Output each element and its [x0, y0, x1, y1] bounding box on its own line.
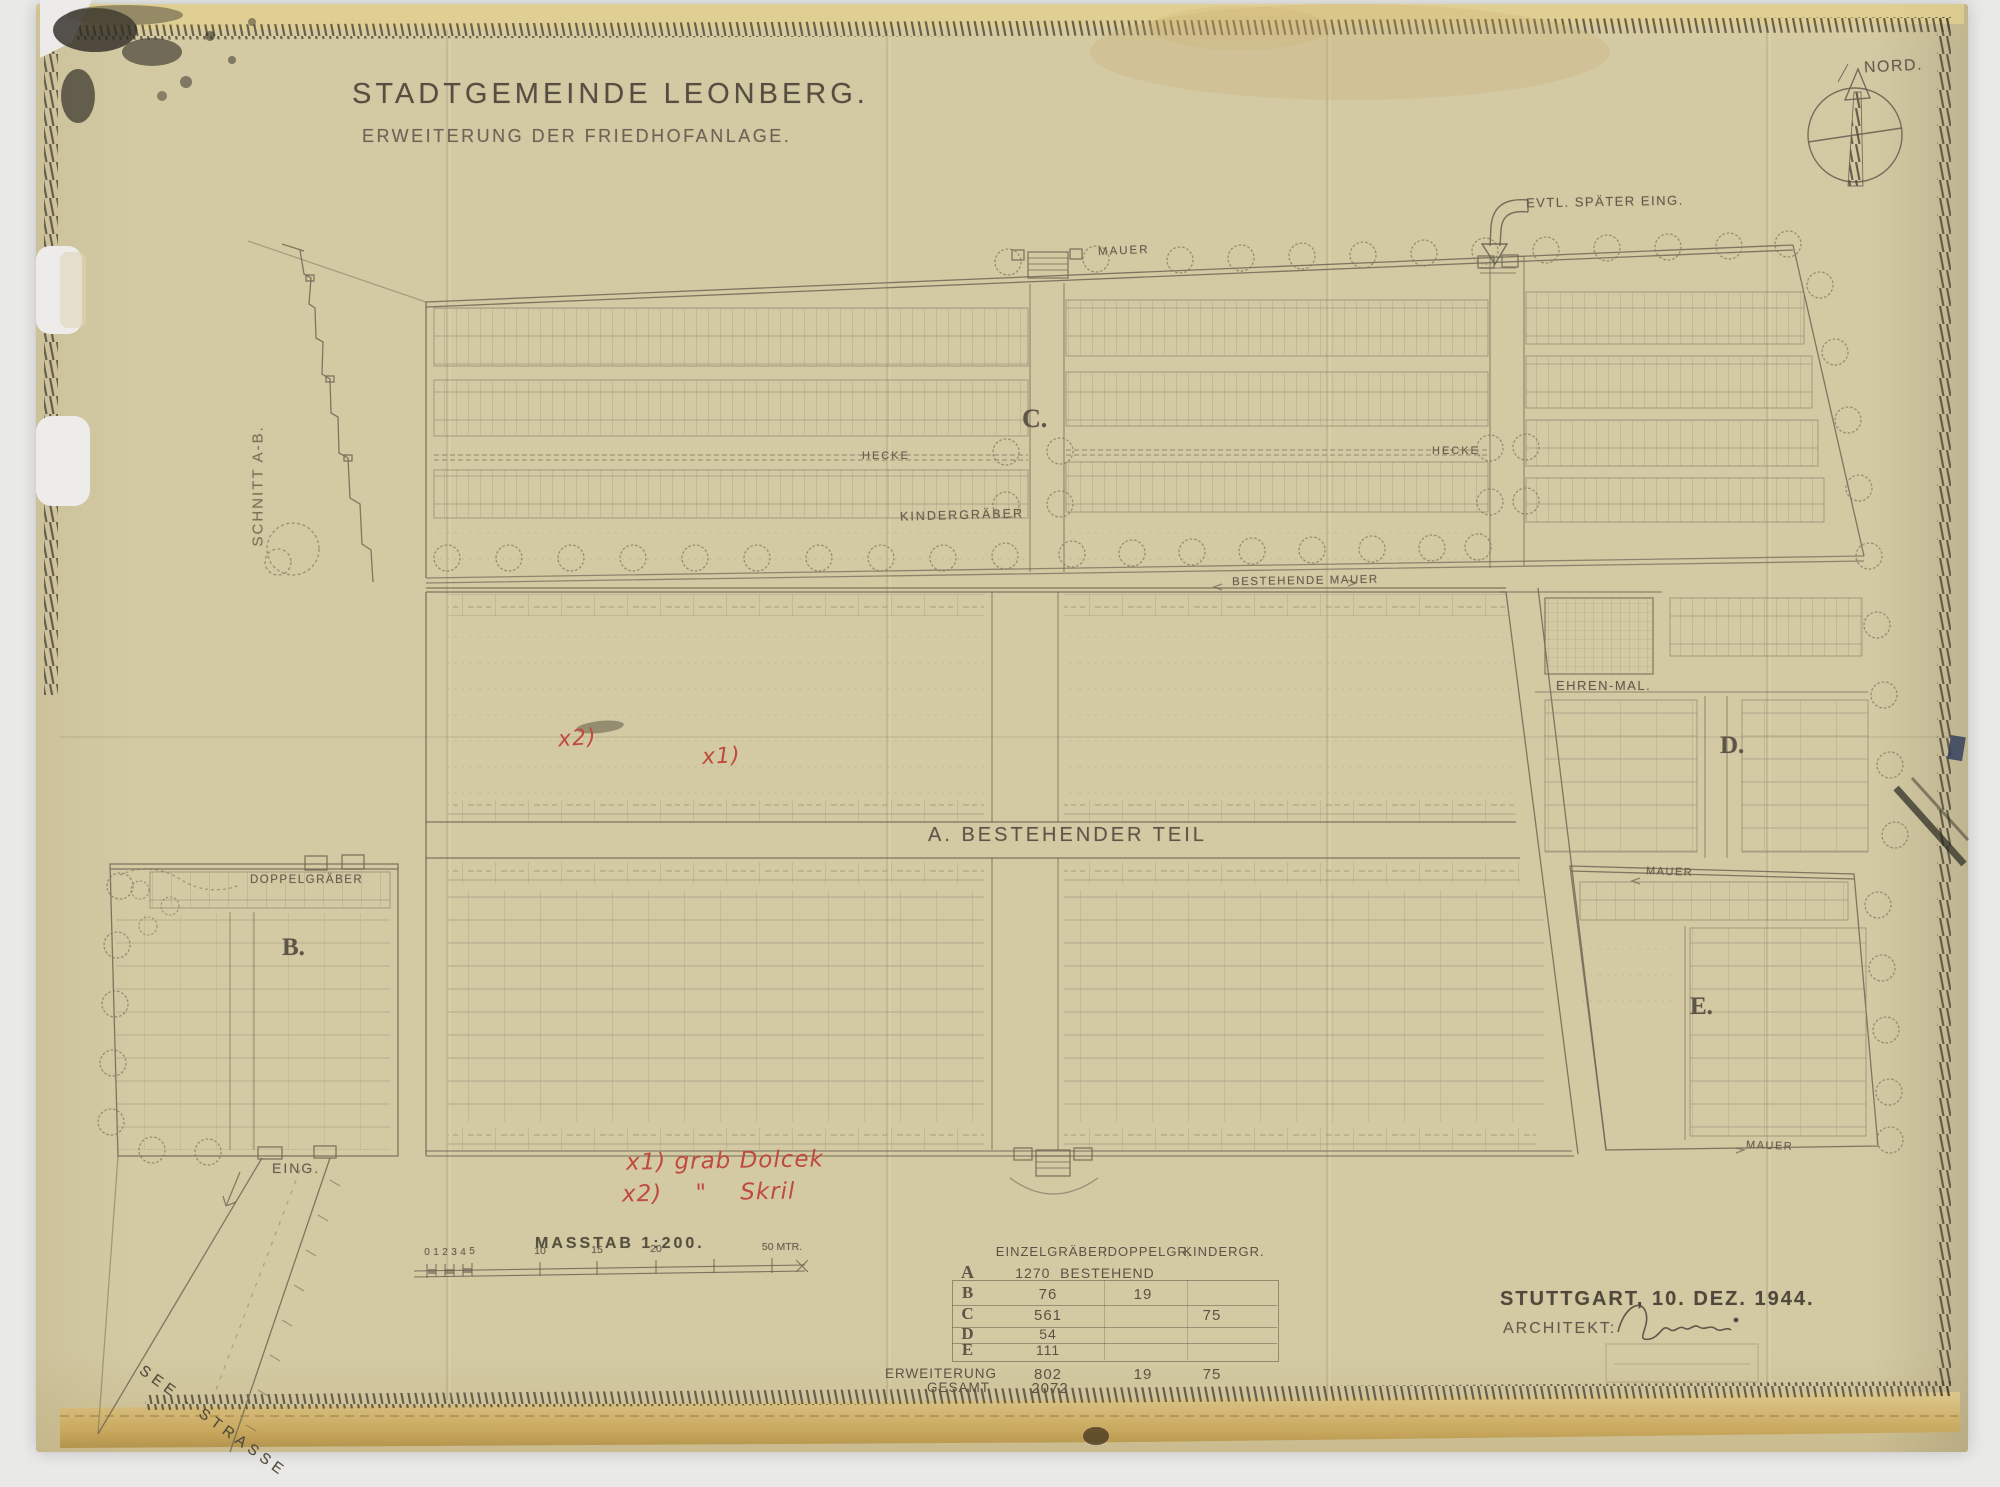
scanned-plan-photo: STADTGEMEINDE LEONBERG. ERWEITERUNG DER …	[0, 0, 2000, 1487]
plan-title: STADTGEMEINDE LEONBERG.	[352, 78, 869, 111]
scale-tick: 10	[534, 1245, 546, 1257]
section-c-label: C.	[1022, 404, 1047, 434]
row-b-einzel: 76	[1039, 1286, 1058, 1303]
header-divider	[1187, 1246, 1188, 1258]
totals-gesamt-einzel: 2072	[1031, 1380, 1068, 1397]
architect-signature	[1606, 1305, 1758, 1382]
section-e	[1570, 866, 1878, 1150]
totals-erweiterung-doppel: 19	[1134, 1366, 1153, 1383]
col-header-kindergr: KINDERGR.	[1183, 1244, 1264, 1259]
row-d-einzel: 54	[1039, 1326, 1057, 1342]
table-line	[952, 1305, 1277, 1306]
col-header-doppelgr: DOPPELGR.	[1108, 1244, 1193, 1259]
compass-rose	[1808, 64, 1902, 186]
section-d	[1500, 592, 1868, 858]
scale-tick: 50 MTR.	[762, 1241, 802, 1253]
schnitt-label: SCHNITT A-B.	[250, 387, 267, 547]
upper-block	[248, 241, 1864, 583]
section-a	[426, 588, 1606, 1194]
scale-tick: 0	[424, 1247, 430, 1258]
bestehende-mauer-label: BESTEHENDE MAUER	[1232, 574, 1379, 589]
table-line	[1104, 1280, 1105, 1360]
scale-tick: 15	[591, 1244, 603, 1256]
section-e-label: E.	[1690, 993, 1713, 1021]
hecke-left-label: HECKE	[862, 450, 910, 462]
mauer-top-label: MAUER	[1098, 244, 1150, 258]
section-b-label: B.	[282, 934, 305, 962]
red-mark-x1: x1)	[701, 743, 741, 770]
table-box	[952, 1280, 1279, 1362]
totals-erweiterung-label: ERWEITERUNG	[885, 1366, 995, 1381]
table-line	[952, 1327, 1277, 1328]
scale-tick: 5	[469, 1246, 475, 1257]
red-note-line1: x1) grab Dolcek	[626, 1146, 824, 1175]
place-date: STUTTGART, 10. DEZ. 1944.	[1500, 1288, 1815, 1311]
scale-tick: 20	[650, 1243, 662, 1255]
section-d-label: D.	[1720, 732, 1744, 760]
table-line	[952, 1343, 1277, 1344]
scale-tick: 3	[451, 1247, 457, 1258]
totals-erweiterung-kinder: 75	[1203, 1366, 1222, 1383]
scale-tick: 2	[442, 1247, 448, 1258]
row-b-doppel: 19	[1134, 1286, 1153, 1303]
row-c-kinder: 75	[1203, 1307, 1222, 1324]
schnitt-profile	[265, 244, 373, 582]
mauer-e-top-label: MAUER	[1646, 865, 1694, 879]
col-header-einzelgraeber: EINZELGRÄBER	[996, 1244, 1108, 1259]
entrance-label: EING.	[272, 1160, 320, 1176]
red-note-line2: x2) " Skril	[622, 1178, 796, 1207]
scale-tick: 1	[433, 1247, 439, 1258]
row-label-c: C	[961, 1304, 974, 1324]
doppelgraeber-label: DOPPELGRÄBER	[250, 874, 363, 886]
section-a-label: A. BESTEHENDER TEIL	[928, 824, 1207, 847]
scale-tick: 4	[460, 1247, 466, 1258]
mauer-e-bottom-label: MAUER	[1746, 1139, 1794, 1153]
red-mark-x2: x2)	[557, 725, 597, 753]
header-divider	[1104, 1246, 1105, 1258]
scale-bar	[414, 1258, 808, 1278]
hecke-right-label: HECKE	[1432, 445, 1480, 457]
ehrenmal-label: EHREN-MAL.	[1556, 678, 1651, 693]
scale-label: MASSTAB 1:200.	[535, 1235, 705, 1253]
row-c-einzel: 561	[1034, 1307, 1062, 1324]
section-b	[110, 855, 398, 1156]
row-label-e: E	[962, 1340, 974, 1360]
totals-gesamt-label: GESAMT	[885, 1380, 990, 1395]
row-e-einzel: 111	[1036, 1342, 1060, 1358]
plan-subtitle: ERWEITERUNG DER FRIEDHOFANLAGE.	[362, 126, 791, 147]
grave-count-table: EINZELGRÄBER DOPPELGR. KINDERGR. A 1270 …	[885, 1240, 1295, 1415]
table-line	[1187, 1280, 1188, 1360]
row-a-einzel: 1270 BESTEHEND	[1015, 1265, 1155, 1281]
north-label: NORD.	[1864, 56, 1924, 77]
architect-label: ARCHITEKT:	[1503, 1320, 1616, 1338]
row-label-b: B	[962, 1283, 974, 1303]
later-entrance-note: EVTL. SPÄTER EING.	[1526, 193, 1684, 211]
